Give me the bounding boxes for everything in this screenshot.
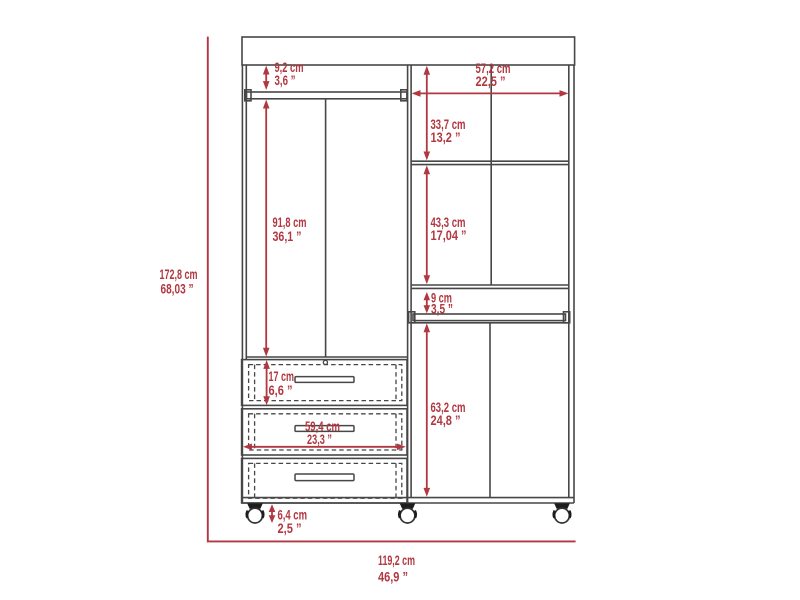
svg-text:24,8 ”: 24,8 ” [431, 412, 461, 428]
svg-text:6,6 ”: 6,6 ” [269, 382, 293, 398]
svg-text:13,2 ”: 13,2 ” [431, 129, 461, 145]
svg-text:2,5 ”: 2,5 ” [278, 520, 302, 536]
svg-text:3,5 ”: 3,5 ” [431, 301, 453, 317]
svg-text:22,5 ”: 22,5 ” [476, 73, 506, 89]
svg-text:17,04 ”: 17,04 ” [431, 227, 467, 243]
svg-text:68,03 ”: 68,03 ” [161, 281, 194, 297]
svg-text:23,3 ”: 23,3 ” [307, 431, 332, 447]
svg-text:3,6 ”: 3,6 ” [275, 72, 296, 88]
svg-text:46,9 ”: 46,9 ” [378, 569, 408, 585]
svg-text:36,1 ”: 36,1 ” [273, 228, 302, 244]
svg-text:119,2 cm: 119,2 cm [378, 552, 415, 568]
